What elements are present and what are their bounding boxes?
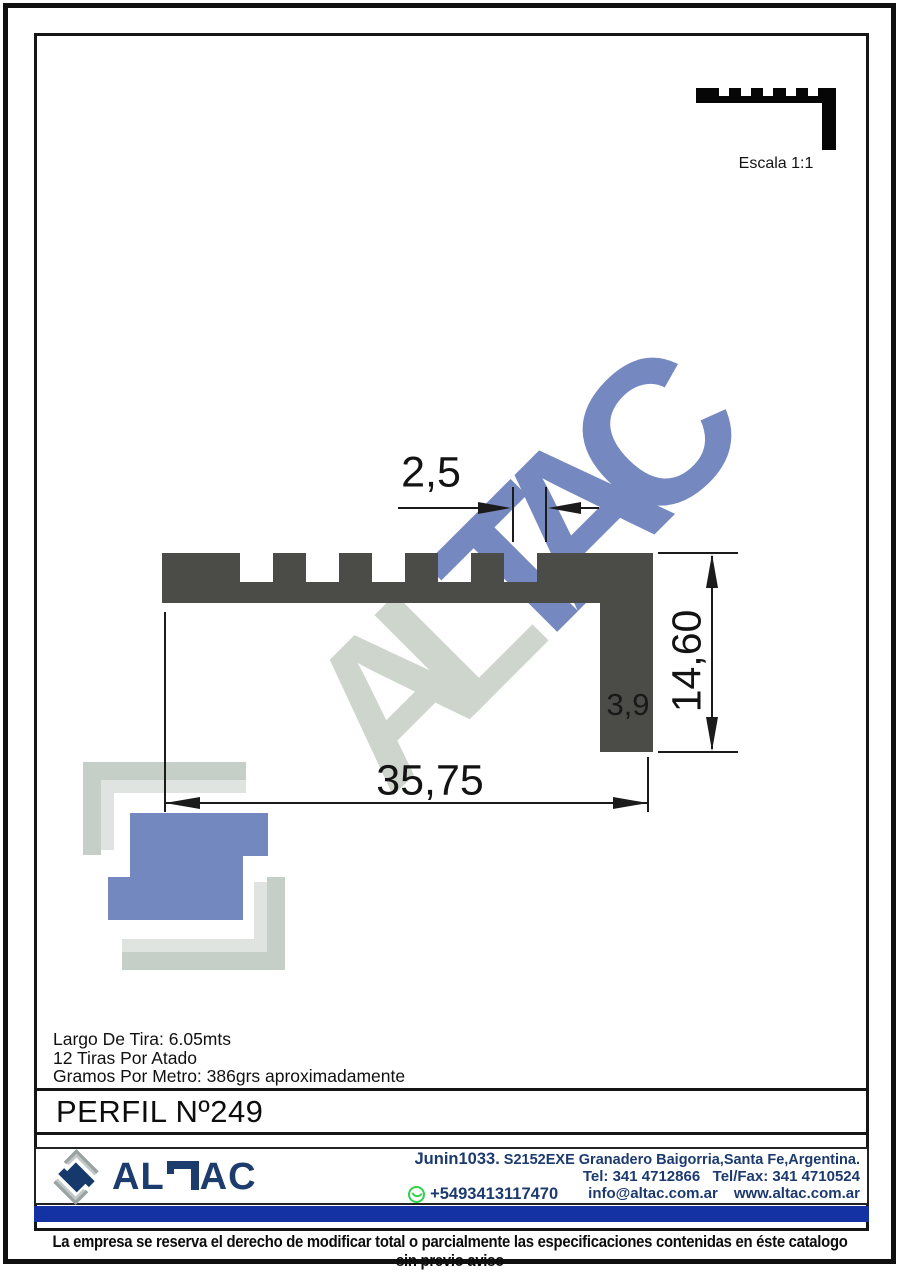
title-bar: PERFIL Nº249 [34,1088,869,1135]
website-url: www.altac.com.ar [734,1185,860,1203]
whatsapp-icon [408,1186,425,1203]
contact-block: Junin1033. S2152EXE Granadero Baigorria,… [408,1151,860,1203]
brand-stylized-t [167,1161,199,1190]
footer-accent-bar [34,1206,869,1222]
address-line: Junin1033. S2152EXE Granadero Baigorria,… [408,1151,860,1169]
brand-wordmark: ALAC [112,1156,257,1199]
spec-strips-bundle: 12 Tiras Por Atado [53,1049,405,1068]
altac-logo-icon [48,1149,104,1205]
whatsapp-number: +5493413117470 [430,1185,558,1203]
address-city: S2152EXE Granadero Baigorria,Santa Fe,Ar… [500,1152,860,1168]
address-street: Junin1033. [414,1150,499,1168]
phones-line: Tel: 341 4712866 Tel/Fax: 341 4710524 [408,1169,860,1185]
brand-al: AL [112,1156,165,1199]
spec-strip-length: Largo De Tira: 6.05mts [53,1030,405,1049]
online-line: +5493413117470 info@altac.com.ar www.alt… [408,1185,860,1203]
footer: ALAC Junin1033. S2152EXE Granadero Baigo… [34,1147,869,1205]
email-address: info@altac.com.ar [588,1185,718,1203]
disclaimer-text: La empresa se reserva el derecho de modi… [45,1233,855,1271]
scale-label: Escala 1:1 [739,155,814,173]
dim-label-total-width: 35,75 [376,757,484,806]
brand-ac: AC [200,1156,257,1199]
dim-label-tooth-width: 2,5 [401,449,461,498]
spec-grams-meter: Gramos Por Metro: 386grs aproximadamente [53,1067,405,1086]
catalog-page: ALTAC [0,0,900,1280]
dim-label-thickness: 3,9 [606,687,649,723]
dim-label-height: 14,60 [664,610,711,713]
specs-block: Largo De Tira: 6.05mts 12 Tiras Por Atad… [53,1030,405,1086]
profile-title: PERFIL Nº249 [56,1094,263,1130]
